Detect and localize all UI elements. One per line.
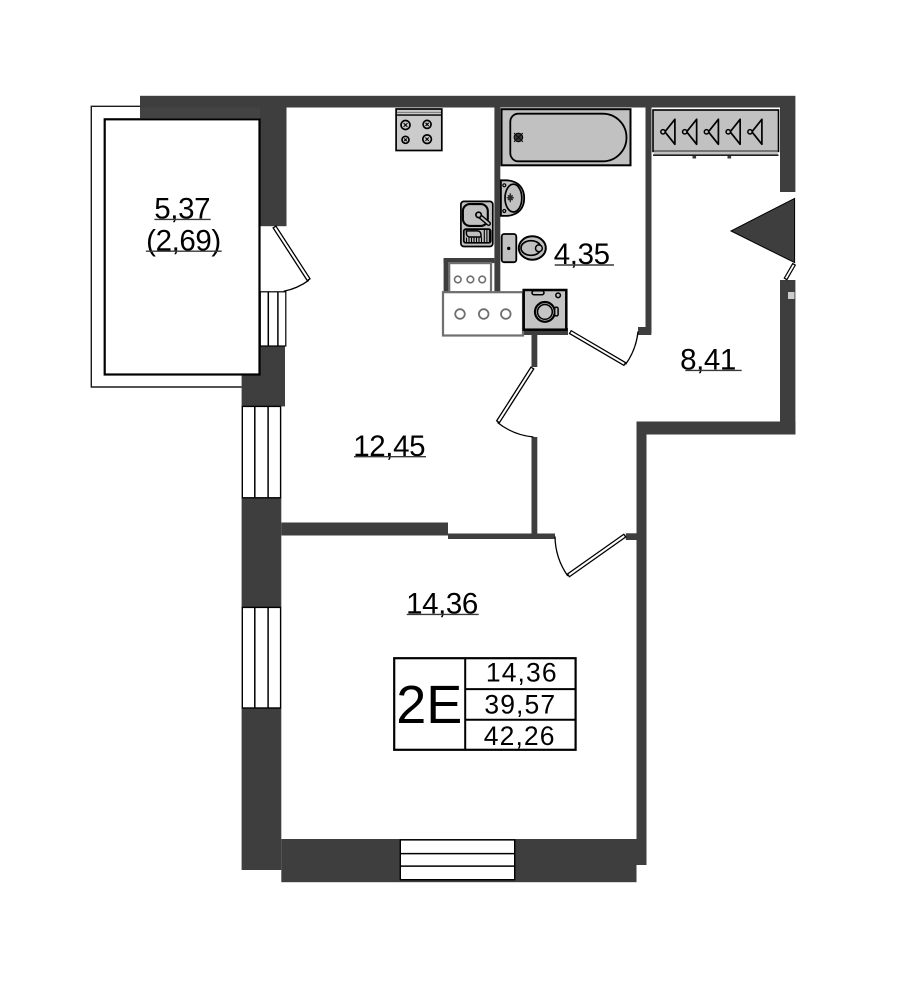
- svg-text:14,36: 14,36: [406, 588, 478, 621]
- svg-text:(2,69): (2,69): [146, 225, 221, 258]
- svg-text:12,45: 12,45: [353, 430, 425, 463]
- svg-text:14,36: 14,36: [486, 658, 558, 688]
- svg-text:42,26: 42,26: [484, 721, 556, 751]
- svg-text:5,37: 5,37: [154, 193, 210, 226]
- svg-text:4,35: 4,35: [554, 238, 610, 271]
- svg-text:39,57: 39,57: [484, 690, 556, 720]
- svg-text:2E: 2E: [396, 675, 462, 735]
- svg-text:8,41: 8,41: [680, 344, 736, 377]
